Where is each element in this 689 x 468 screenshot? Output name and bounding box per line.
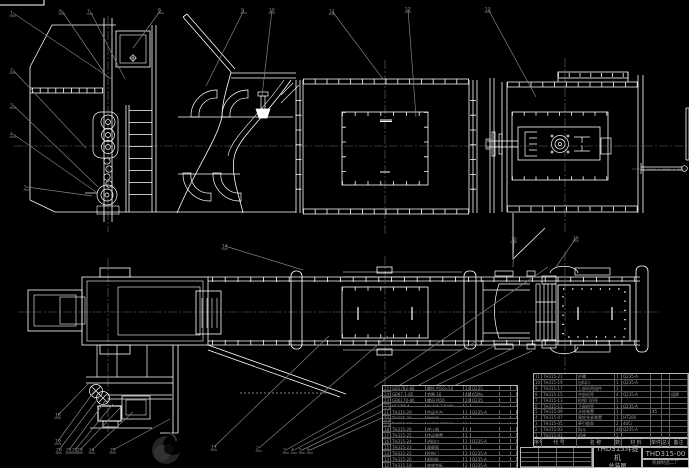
bom-cell: 1 [464,439,471,444]
balloon-number: 3 [10,103,13,109]
bom-cell: TH315-24 [391,439,426,444]
signature-grid [520,447,593,468]
company-name: 机械制造二厂 [642,459,689,468]
leader-line [374,267,548,387]
bom-cell: 逆止器 [426,427,464,432]
bom-cell: 1 [464,410,471,415]
bom-cell [500,404,511,407]
bolt-part [256,92,270,118]
bom-cell [511,445,517,450]
bom-cell [500,410,511,415]
balloon-number: 25 [110,448,116,454]
bom-cell: 螺母 M16 [426,398,464,403]
balloon-number: 18 [55,413,61,419]
middle-casing [281,79,477,214]
leader-line [133,10,161,48]
drive-gearbox [116,31,150,67]
balloon-number: 10 [269,8,275,14]
signature-cell [557,462,575,467]
balloon-number: 17 [211,445,217,451]
bom-cell: Q235-A [471,463,500,468]
bom-cell: 1 [464,433,471,438]
door-plan [342,267,462,355]
bom-cell: GB5782-86 [391,386,426,391]
balloon-number: 2 [256,446,259,452]
bom-cell: 减速器 ZQ350 [426,422,464,425]
bom-cell: 1 [464,457,471,462]
bom-cell: Q235-A [471,439,500,444]
signature-cell [539,462,557,467]
balloon-number: 6 [59,9,62,15]
balloon-number: 21 [66,448,72,454]
cover-plate [558,285,630,341]
bom-cell [471,445,500,450]
bom-cell [500,398,511,403]
balloon-number: 6 [307,448,310,454]
leader-line [408,9,416,117]
bom-cell: 螺栓 M16×50 [426,386,464,391]
bom-cell: Q235-A [471,410,500,415]
bom-cell [511,422,517,425]
drawing-title: 总装图 [594,463,641,468]
s-curve-right [233,80,291,213]
leader-line [259,336,388,448]
bom-cell: 2 [464,451,471,456]
s-curve-inner [228,80,284,156]
balloon-number: 12 [405,7,411,13]
balloon-number: 4 [10,132,13,138]
bom-cell [471,404,500,407]
balloon-number: 13 [485,7,491,13]
balloon-number: 15 [511,237,517,243]
leader-line [13,13,113,80]
tension-rod [641,163,682,174]
leader-line [58,382,90,415]
bom-cell: 检修门 [426,451,464,456]
balloon-number: 1 [10,11,13,17]
bom-cell [500,451,511,456]
bom-cell [471,416,500,419]
bom-cell: 传动装置 [426,433,464,438]
leader-line [332,11,383,79]
balloon-number: 4 [291,448,294,454]
bom-cell: 卸料板 [426,457,464,462]
bom-cell: 48 [464,392,471,397]
bom-cell: TH315-27 [391,422,426,425]
bom-cell: 1 [464,427,471,432]
balloon-number: 14 [222,244,228,250]
balloon-number: 3 [283,448,286,454]
bom-cell [511,404,517,407]
leader-line [13,134,96,192]
signature-cell [574,462,592,467]
bom-cell: Y132M-4 [391,404,426,407]
flange-joints [291,266,648,352]
bom-table-right: 11TH315-21护罩1Q235-A10TH315-19出料口1Q235-A9… [533,373,689,438]
leader-line [13,70,86,148]
bom-cell [511,392,517,397]
bom-cell: GB6170-86 [391,398,426,403]
frame-corner [0,0,44,5]
bom-table-left: 25GB5782-86螺栓 M16×5024Q23524GB97.1-85垫圈 … [382,385,518,468]
balloon-number: 24 [89,448,95,454]
takeup-assembly [486,132,687,174]
balloon-number: 9 [241,8,244,14]
balloon-number: 20 [56,448,62,454]
bom-cell: GB97.1-85 [391,392,426,397]
bom-cell: Q235-A [471,457,500,462]
balloon-number: 16 [573,236,579,242]
leader-line [27,187,92,196]
bom-cell: 65Mn [471,392,500,397]
chain-assembly [85,112,119,214]
throat-curve [222,72,231,117]
bom-cell: TH315-29 [391,410,426,415]
view-link-line [513,213,545,259]
leader-line [262,10,272,96]
signature-cell [521,462,539,467]
s-curve-left [177,117,222,213]
bom-cell [511,433,517,438]
balloon-number: 19 [55,439,61,445]
bom-cell: TH315-28 [391,416,426,419]
upper-casing [231,73,296,78]
bom-row: 12TH315-18底座垫板2Q235-A [383,463,517,468]
leader-line [225,246,303,270]
bucket-rail [126,105,141,212]
bom-cell [471,422,500,425]
bom-cell: Q235 [471,398,500,403]
slot-plate [202,298,217,328]
bom-cell: 24 [464,398,471,403]
bom-cell [511,457,517,462]
balloon-number: 8 [158,8,161,14]
rod-handle [682,166,688,172]
bom-cell: 进料口 [426,439,464,444]
bom-cell: 2 [464,463,471,468]
bom-cell: 联轴器 [426,416,464,419]
bom-cell: TH315-23 [391,445,426,450]
bom-cell [511,410,517,415]
bom-cell [471,427,500,432]
bom-cell: 1 [464,404,471,407]
bom-cell: 电动机 7.5kW [426,404,464,407]
bom-cell [500,416,511,419]
product-name: THD315斗提机 [594,445,641,463]
leader-line [214,336,329,447]
bom-cell [511,398,517,403]
bom-cell: TH315-20 [391,457,426,462]
bom-cell [500,433,511,438]
bucket-scoops [183,90,248,201]
balloon-number: 11 [329,9,335,15]
cad-drawing-sheet: 1234567891011121314151617181920212223242… [0,0,689,468]
leader-line [58,390,95,441]
bom-cell [500,445,511,450]
bom-cell: 底座垫板 [426,463,464,468]
title-block: THD315斗提机 总装图 [593,447,642,468]
balloon-number: 5 [299,448,302,454]
end-flange [638,75,643,213]
bom-cell [500,427,511,432]
bom-cell [471,433,500,438]
bom-cell: Q235-A [471,451,500,456]
bom-cell [500,457,511,462]
bom-cell: 传动平台 [426,410,464,415]
balloon-number: 23 [77,448,83,454]
leader-line [206,10,244,86]
balloon-number: 2 [10,68,13,74]
bom-cell: TH315-18 [391,463,426,468]
bom-cell [500,422,511,425]
bom-cell [500,386,511,391]
bom-cell [511,451,517,456]
head-end-flange [636,266,648,352]
bom-cell: 垫圈 16 [426,392,464,397]
bom-cell [511,416,517,419]
bom-cell: 观察窗 [426,445,464,450]
leader-line [62,11,107,77]
head-casing [30,25,296,212]
bom-cell [500,439,511,444]
bom-cell [511,386,517,391]
bom-cell: 1 [464,416,471,419]
boot-section [490,72,643,213]
leader-line [556,238,576,267]
balloon-number: 5 [24,185,27,191]
shelves [178,117,293,174]
drawing-number: THD315-00 [642,447,689,459]
bom-cell [500,463,511,468]
bom-cell: 24 [464,386,471,391]
bom-cell [511,463,517,468]
bom-cell: TH315-22 [391,451,426,456]
bom-cell: 1 [464,445,471,450]
bom-cell: TH315-26 [391,427,426,432]
boot-plan [28,268,221,354]
bom-cell: TH315-25 [391,433,426,438]
leader-line [488,9,536,97]
platform [30,88,103,93]
balloon-number: 7 [87,9,90,15]
bom-cell: Q235 [471,386,500,391]
bom-cell: 1 [464,422,471,425]
bom-cell [511,439,517,444]
elevation-view [30,14,689,222]
bom-cell [511,427,517,432]
leader-line [59,396,100,450]
watermark-logo [152,433,183,464]
discharge-chute [160,345,346,433]
bom-cell [500,392,511,397]
